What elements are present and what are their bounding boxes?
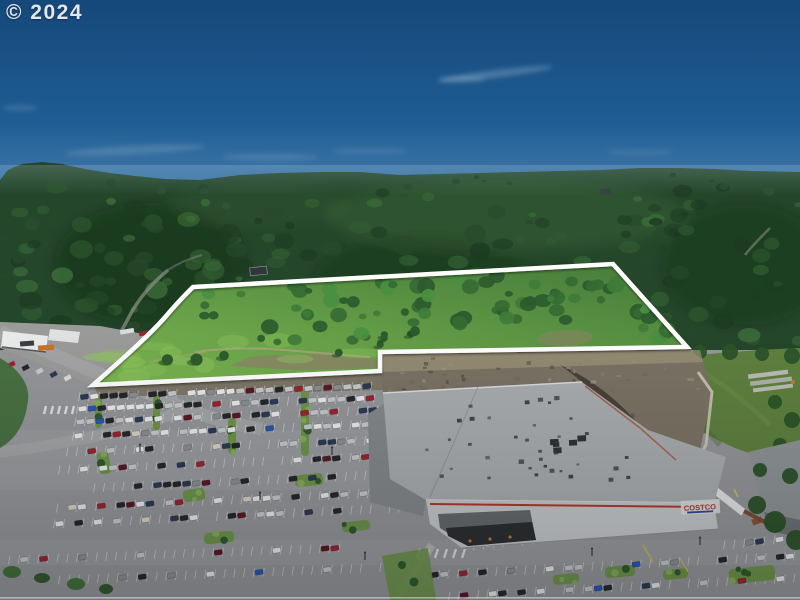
aerial-property-photo: COSTCO © 2024 (0, 0, 800, 600)
copyright-watermark: © 2024 (6, 1, 83, 25)
scene-canvas: COSTCO (0, 0, 800, 600)
photo-bottom-edge (0, 597, 800, 599)
photo-vignette (0, 0, 800, 600)
